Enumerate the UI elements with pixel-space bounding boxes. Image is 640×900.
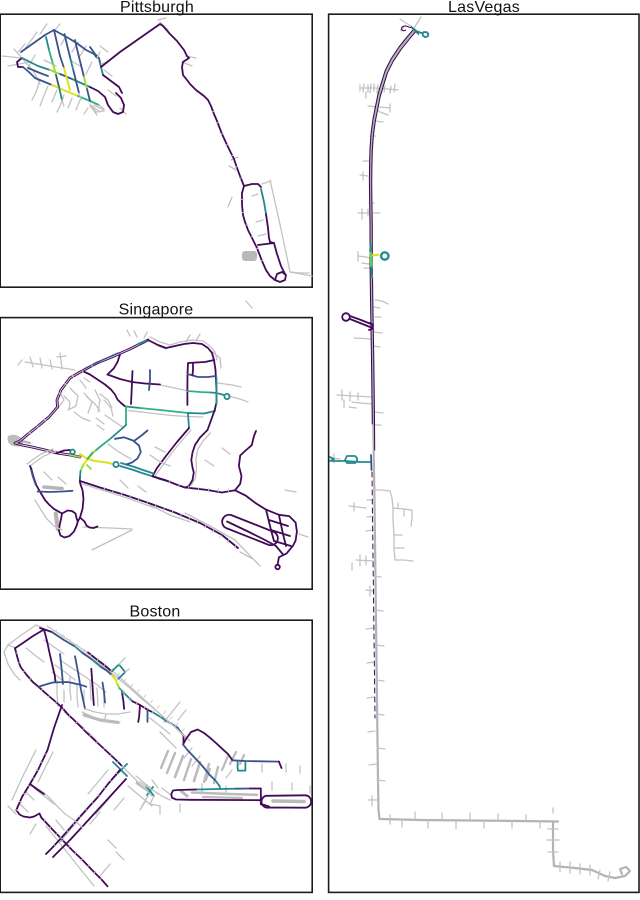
svg-text:LasVegas: LasVegas <box>448 0 520 16</box>
svg-text:Singapore: Singapore <box>119 302 194 319</box>
svg-text:Boston: Boston <box>129 604 180 621</box>
svg-text:Pittsburgh: Pittsburgh <box>120 0 194 16</box>
